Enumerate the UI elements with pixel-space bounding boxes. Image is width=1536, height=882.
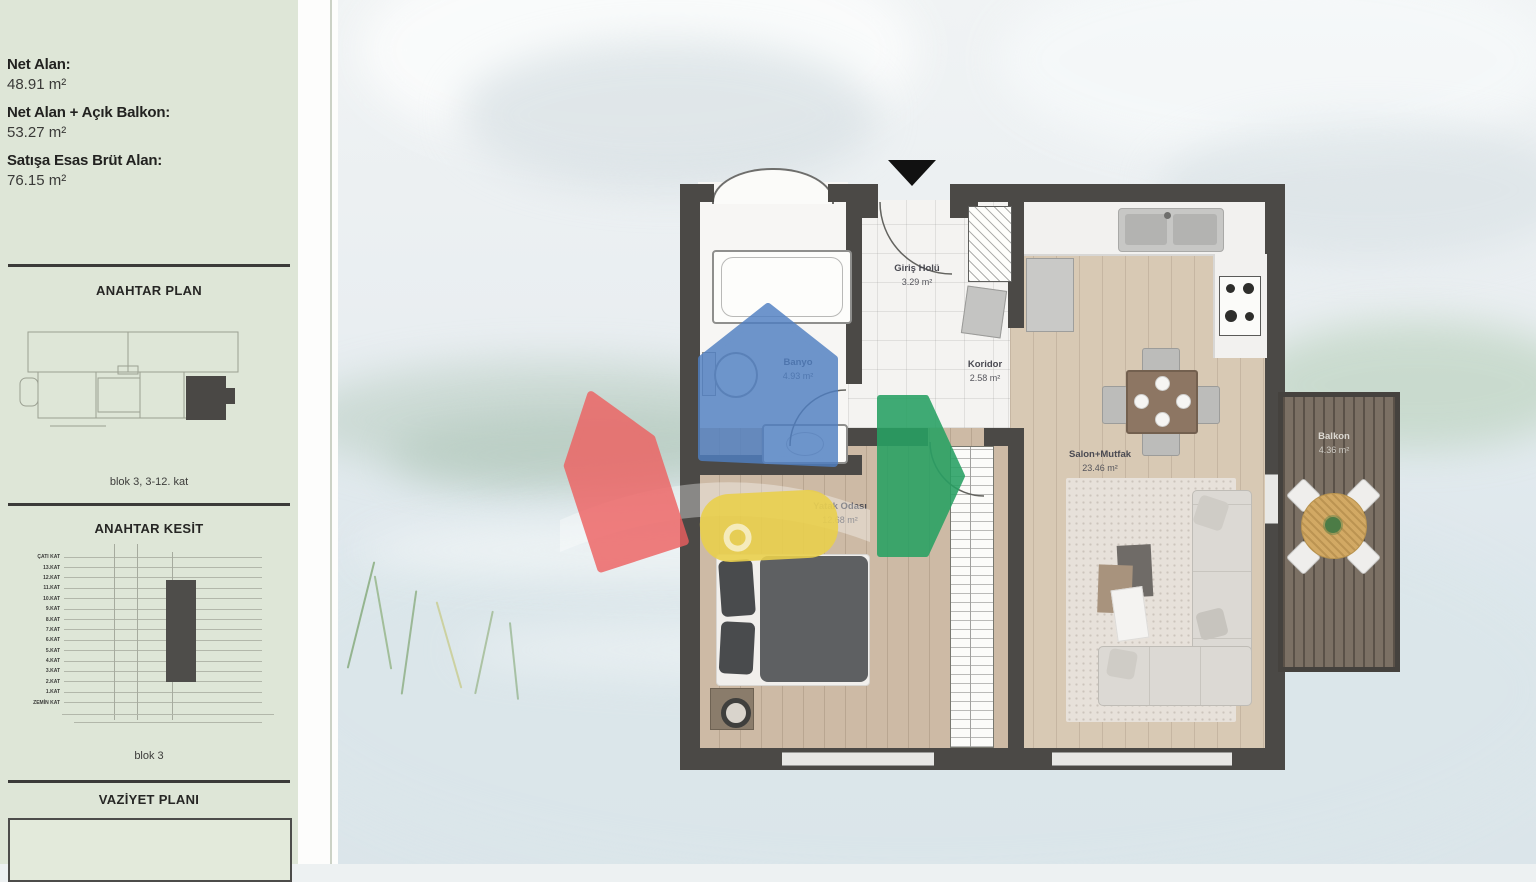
room-label-salon-mutfak: Salon+Mutfak 23.46 m² (1045, 448, 1155, 475)
room-name: Giriş Holü (867, 262, 967, 276)
watermark-green-house (880, 398, 962, 554)
room-label-balkon: Balkon 4.36 m² (1288, 430, 1380, 457)
room-name: Salon+Mutfak (1045, 448, 1155, 462)
room-area: 4.36 m² (1288, 444, 1380, 457)
watermark-blue-house (702, 307, 834, 463)
watermark-yellow-shape (698, 488, 839, 563)
brand-watermark-logo (540, 280, 1010, 580)
room-area: 23.46 m² (1045, 462, 1155, 475)
room-name: Balkon (1288, 430, 1380, 444)
